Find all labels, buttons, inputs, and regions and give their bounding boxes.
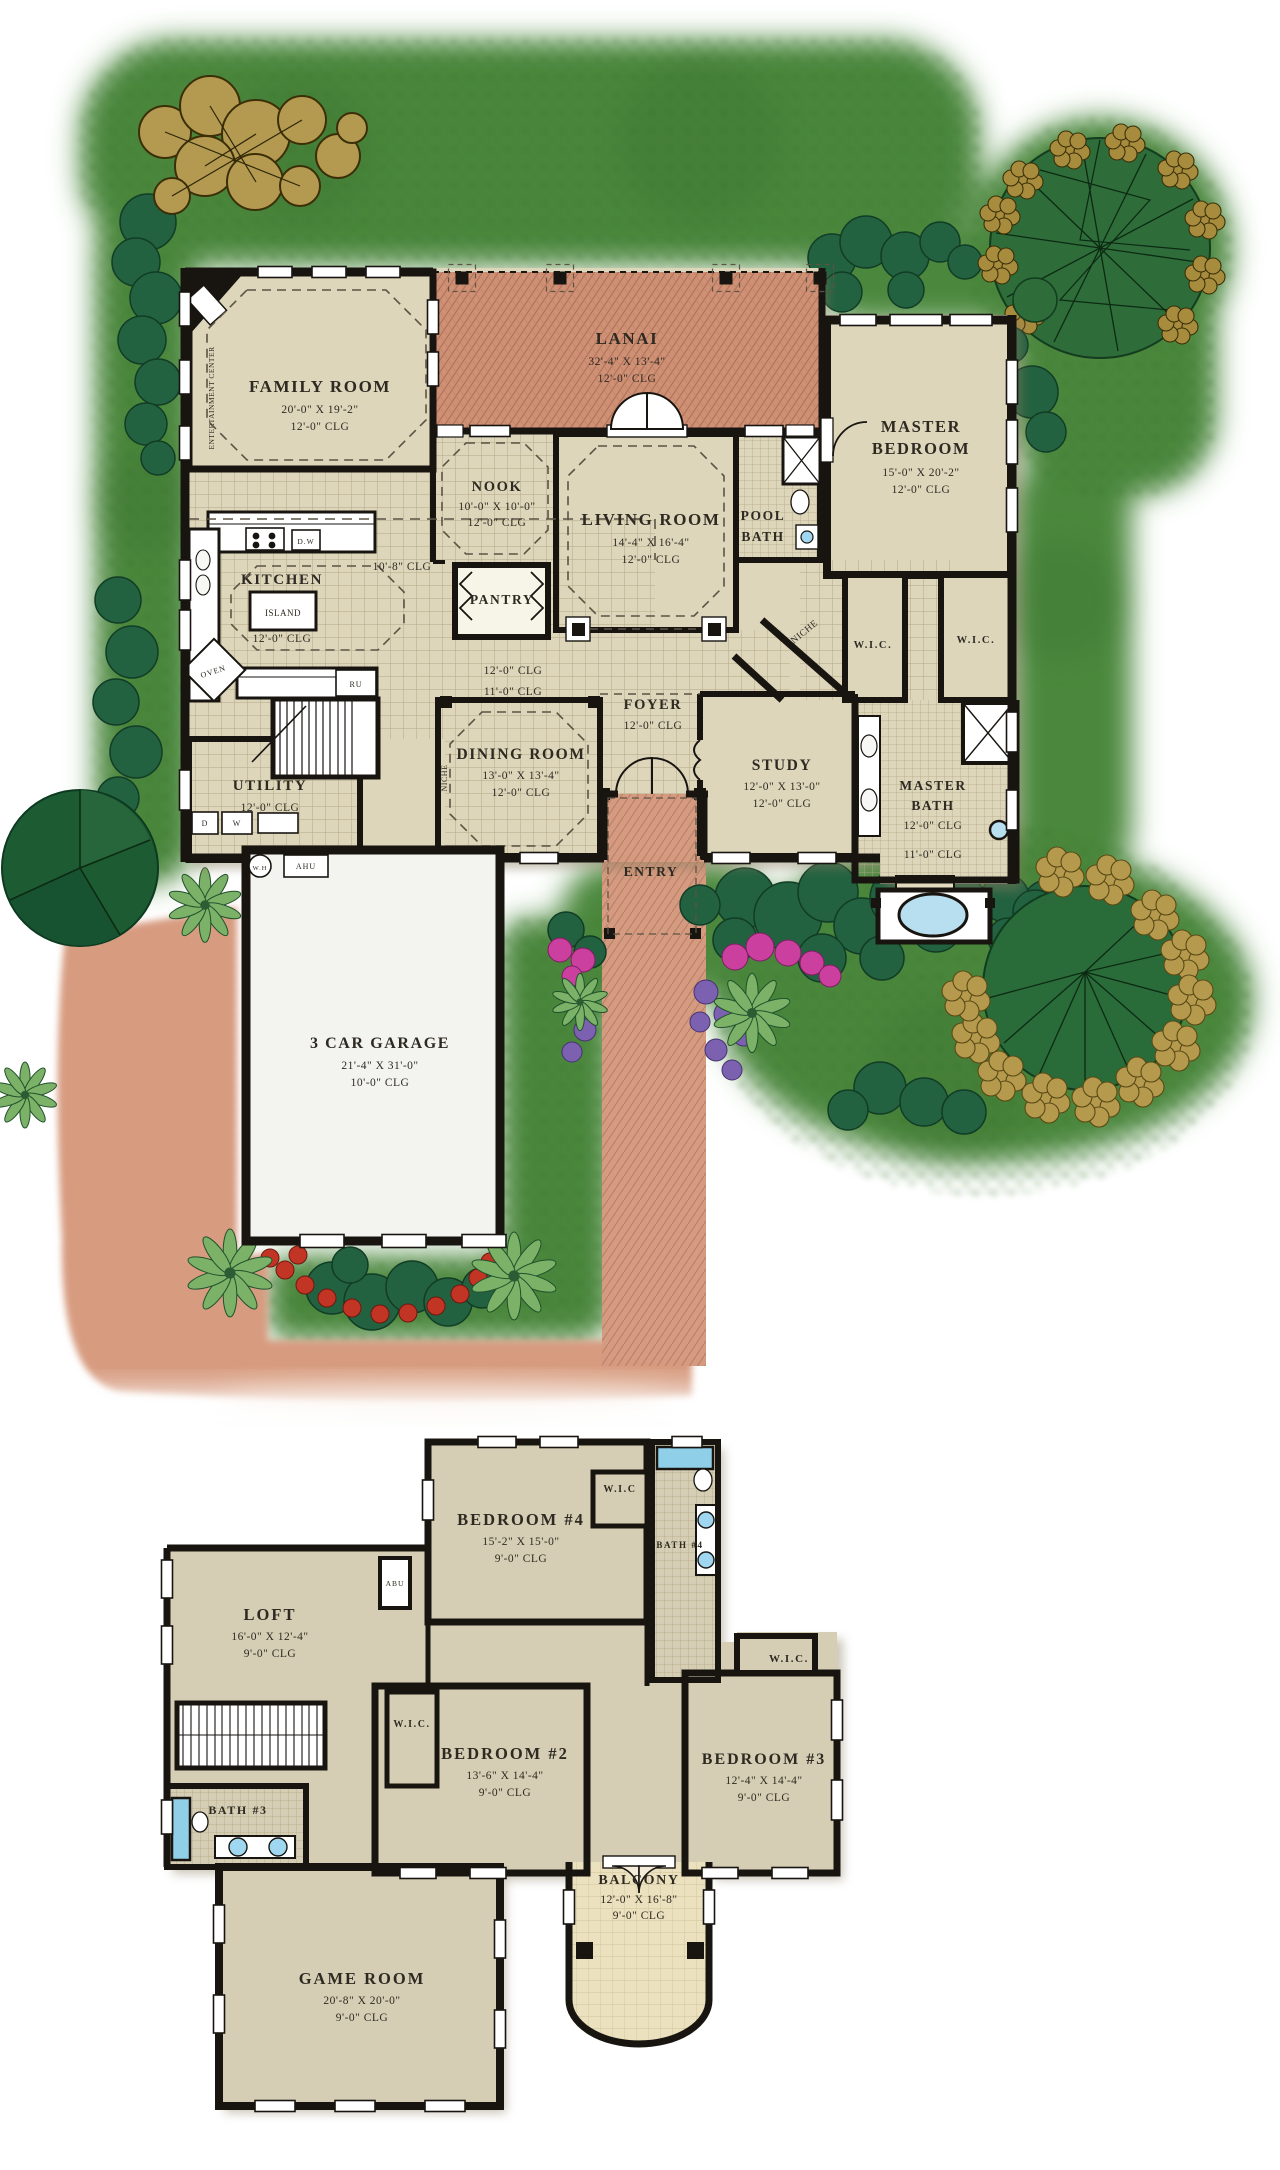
svg-text:ENTRY: ENTRY [624, 864, 679, 879]
svg-text:BATH: BATH [741, 529, 784, 544]
svg-text:20'-8" X 20'-0": 20'-8" X 20'-0" [323, 1995, 400, 2007]
svg-text:10'-0" CLG: 10'-0" CLG [351, 1077, 410, 1089]
svg-text:D: D [202, 819, 209, 828]
svg-text:12'-0" CLG: 12'-0" CLG [622, 554, 681, 566]
svg-text:W.I.C.: W.I.C. [854, 640, 893, 651]
svg-text:MASTER: MASTER [881, 417, 961, 436]
svg-text:BEDROOM #4: BEDROOM #4 [457, 1510, 585, 1529]
svg-text:RU: RU [349, 680, 362, 689]
svg-text:NOOK: NOOK [472, 479, 523, 495]
svg-text:LOFT: LOFT [244, 1605, 297, 1624]
svg-text:W: W [233, 819, 242, 828]
svg-text:12'-0" CLG: 12'-0" CLG [253, 633, 312, 645]
svg-text:12'-0" CLG: 12'-0" CLG [892, 484, 951, 496]
svg-text:15'-2" X 15'-0": 15'-2" X 15'-0" [482, 1536, 559, 1548]
svg-text:12'-0" CLG: 12'-0" CLG [598, 373, 657, 385]
svg-text:W.I.C.: W.I.C. [769, 1653, 809, 1665]
svg-text:12'-4" X 14'-4": 12'-4" X 14'-4" [725, 1775, 802, 1787]
svg-text:12'-0" X 13'-0": 12'-0" X 13'-0" [743, 781, 820, 793]
svg-text:9'-0" CLG: 9'-0" CLG [479, 1787, 531, 1799]
svg-text:BALCONY: BALCONY [598, 1873, 679, 1888]
svg-text:MASTER: MASTER [899, 778, 966, 793]
svg-text:9'-0" CLG: 9'-0" CLG [336, 2012, 388, 2024]
svg-text:9'-0" CLG: 9'-0" CLG [495, 1553, 547, 1565]
svg-text:BATH: BATH [911, 798, 954, 813]
svg-text:12'-0" CLG: 12'-0" CLG [468, 517, 527, 529]
svg-text:32'-4" X 13'-4": 32'-4" X 13'-4" [588, 356, 665, 368]
svg-text:21'-4" X 31'-0": 21'-4" X 31'-0" [341, 1060, 418, 1072]
svg-text:BATH #3: BATH #3 [208, 1803, 267, 1817]
svg-text:LIVING ROOM: LIVING ROOM [582, 510, 721, 529]
svg-text:BEDROOM #3: BEDROOM #3 [702, 1751, 826, 1768]
svg-text:13'-0" X 13'-4": 13'-0" X 13'-4" [482, 770, 559, 782]
svg-text:BATH #4: BATH #4 [656, 1540, 703, 1550]
svg-text:BEDROOM: BEDROOM [872, 439, 970, 458]
svg-text:FAMILY ROOM: FAMILY ROOM [249, 377, 391, 396]
svg-text:13'-6" X 14'-4": 13'-6" X 14'-4" [466, 1770, 543, 1782]
svg-text:W.I.C.: W.I.C. [393, 1719, 430, 1730]
svg-text:12'-0" CLG: 12'-0" CLG [753, 798, 812, 810]
svg-text:POOL: POOL [741, 508, 786, 523]
svg-text:11'-0" CLG: 11'-0" CLG [484, 686, 542, 698]
svg-text:12'-0" X 16'-8": 12'-0" X 16'-8" [600, 1894, 677, 1906]
svg-text:11'-0" CLG: 11'-0" CLG [904, 849, 962, 861]
svg-text:ISLAND: ISLAND [265, 608, 301, 618]
svg-text:16'-0" X 12'-4": 16'-0" X 12'-4" [231, 1631, 308, 1643]
svg-text:9'-0" CLG: 9'-0" CLG [244, 1648, 296, 1660]
svg-text:12'-0" CLG: 12'-0" CLG [484, 665, 543, 677]
svg-text:DINING ROOM: DINING ROOM [456, 746, 585, 763]
svg-text:15'-0" X 20'-2": 15'-0" X 20'-2" [882, 467, 959, 479]
svg-text:12'-0" CLG: 12'-0" CLG [492, 787, 551, 799]
svg-text:LANAI: LANAI [596, 329, 659, 348]
svg-text:10'-0" X 10'-0": 10'-0" X 10'-0" [458, 501, 535, 513]
svg-text:BEDROOM #2: BEDROOM #2 [441, 1744, 569, 1763]
svg-text:20'-0" X 19'-2": 20'-0" X 19'-2" [281, 404, 358, 416]
svg-text:UTILITY: UTILITY [233, 778, 308, 794]
svg-text:KITCHEN: KITCHEN [241, 572, 323, 588]
svg-text:12'-0" CLG: 12'-0" CLG [904, 820, 963, 832]
svg-text:FOYER: FOYER [624, 697, 683, 713]
svg-text:10'-8" CLG: 10'-8" CLG [373, 561, 432, 573]
svg-text:NICHE: NICHE [440, 765, 449, 792]
svg-text:9'-0" CLG: 9'-0" CLG [738, 1792, 790, 1804]
svg-text:12'-0" CLG: 12'-0" CLG [624, 720, 683, 732]
svg-text:AHU: AHU [296, 862, 316, 871]
svg-text:12'-0" CLG: 12'-0" CLG [241, 802, 300, 814]
svg-text:D.W: D.W [297, 537, 314, 546]
svg-text:W.I.C: W.I.C [603, 1484, 636, 1495]
svg-text:GAME ROOM: GAME ROOM [299, 1969, 426, 1988]
svg-text:9'-0" CLG: 9'-0" CLG [613, 1910, 665, 1922]
svg-text:W.H: W.H [253, 865, 268, 872]
svg-text:STUDY: STUDY [752, 757, 813, 774]
svg-text:ENTERTAINMENT CENTER: ENTERTAINMENT CENTER [207, 346, 216, 449]
svg-text:ABU: ABU [386, 1579, 405, 1588]
svg-text:PANTRY: PANTRY [470, 592, 534, 607]
svg-text:12'-0" CLG: 12'-0" CLG [291, 421, 350, 433]
svg-text:W.I.C.: W.I.C. [957, 635, 996, 646]
svg-text:14'-4" X 16'-4": 14'-4" X 16'-4" [612, 537, 689, 549]
svg-text:3 CAR GARAGE: 3 CAR GARAGE [310, 1035, 450, 1052]
